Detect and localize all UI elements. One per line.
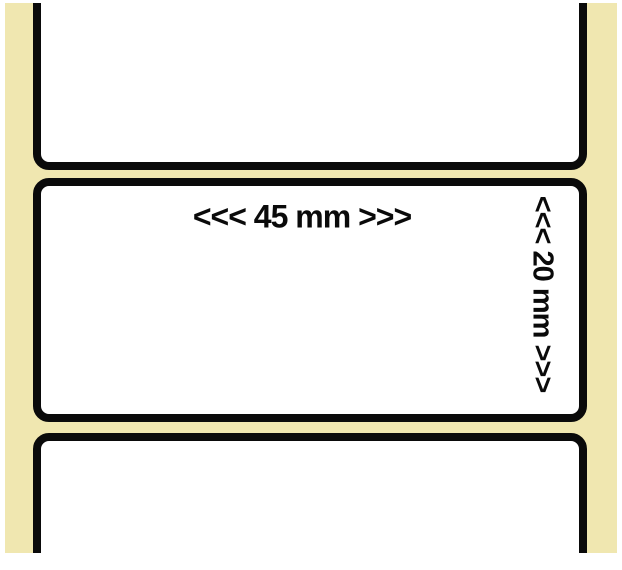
- label-bottom-partial: [33, 433, 587, 553]
- label-middle: <<< 45 mm >>> <<< 20 mm >>>: [33, 178, 587, 422]
- label-top-partial: [33, 3, 587, 170]
- height-dimension-label: <<< 20 mm >>>: [526, 196, 559, 393]
- width-dimension-label: <<< 45 mm >>>: [193, 199, 411, 236]
- label-roll-product-image: <<< 45 mm >>> <<< 20 mm >>>: [0, 0, 622, 570]
- backing-paper: <<< 45 mm >>> <<< 20 mm >>>: [5, 3, 617, 553]
